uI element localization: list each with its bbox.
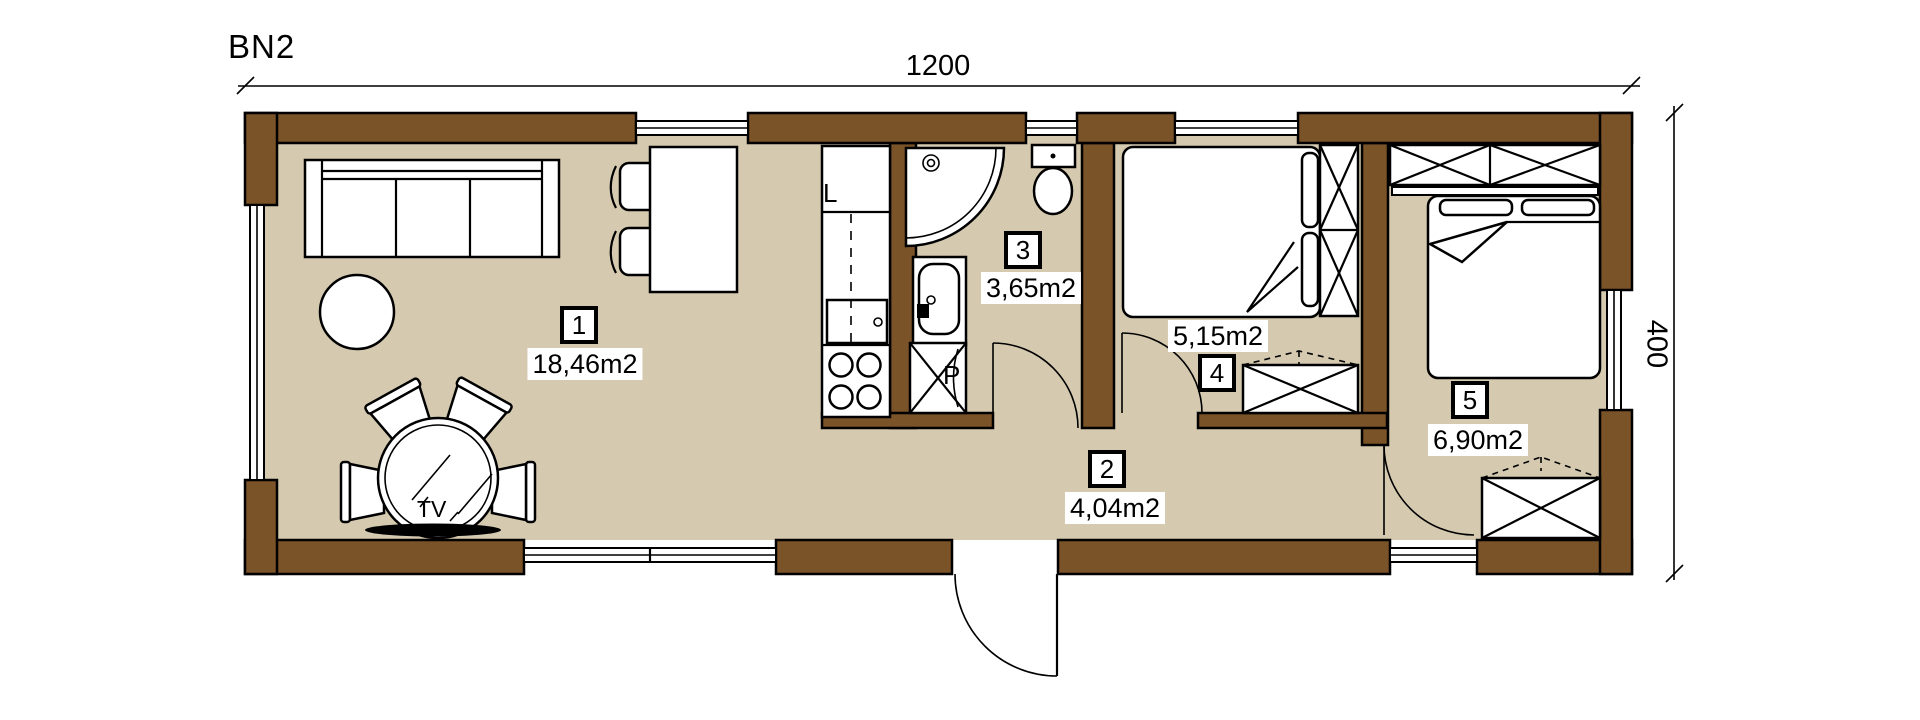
clothes-rail xyxy=(1392,187,1598,195)
wardrobe-room5 xyxy=(1390,145,1600,195)
dimension-height-label: 400 xyxy=(1640,320,1673,368)
room-number-1: 1 xyxy=(572,310,586,341)
washing-machine-label: P xyxy=(943,360,960,391)
window-bedroom5-bottom xyxy=(1390,548,1477,562)
plan-title: BN2 xyxy=(228,28,295,66)
room-number-box-1: 1 xyxy=(560,306,598,344)
sofa xyxy=(305,160,559,257)
room-number-3: 3 xyxy=(1016,235,1030,266)
dining-table xyxy=(650,147,737,292)
window-bathroom-top xyxy=(1026,121,1077,135)
room-area-4: 5,15m2 xyxy=(1168,320,1268,352)
window-living-bottom xyxy=(524,548,776,562)
wardrobe-room4 xyxy=(1320,145,1358,316)
room-area-5: 6,90m2 xyxy=(1428,424,1528,456)
room-number-2: 2 xyxy=(1100,454,1114,485)
room-number-box-5: 5 xyxy=(1451,381,1489,419)
toilet xyxy=(1032,145,1075,214)
pillow xyxy=(1302,233,1318,306)
room-number-box-4: 4 xyxy=(1198,354,1236,392)
washbasin xyxy=(913,257,966,345)
tv-unit xyxy=(365,524,501,537)
room-area-3: 3,65m2 xyxy=(981,272,1081,304)
entrance-door xyxy=(955,574,1057,676)
room-area-1: 18,46m2 xyxy=(527,348,642,380)
bed-room5 xyxy=(1428,196,1600,378)
pillow xyxy=(1440,200,1512,215)
window-living-top xyxy=(636,121,748,135)
dimension-width-label: 1200 xyxy=(906,50,971,83)
window-living-left xyxy=(250,205,264,480)
room-number-4: 4 xyxy=(1210,358,1224,389)
coffee-table xyxy=(320,275,394,349)
pillow xyxy=(1302,153,1318,227)
room-number-box-3: 3 xyxy=(1004,231,1042,269)
window-bedroom4-top xyxy=(1175,121,1298,135)
room-number-5: 5 xyxy=(1463,385,1477,416)
tv-label: TV xyxy=(417,496,446,523)
window-bedroom5-right xyxy=(1607,290,1621,410)
fridge-label: L xyxy=(823,178,837,209)
kitchen-sink xyxy=(827,300,887,343)
bed-room4 xyxy=(1123,147,1320,317)
room-area-2: 4,04m2 xyxy=(1065,492,1165,524)
room-number-box-2: 2 xyxy=(1088,450,1126,488)
pillow xyxy=(1522,200,1594,215)
floor-plan: BN2 1200 400 1 18,46m2 2 4,04m2 3 3,65m2… xyxy=(0,0,1920,720)
